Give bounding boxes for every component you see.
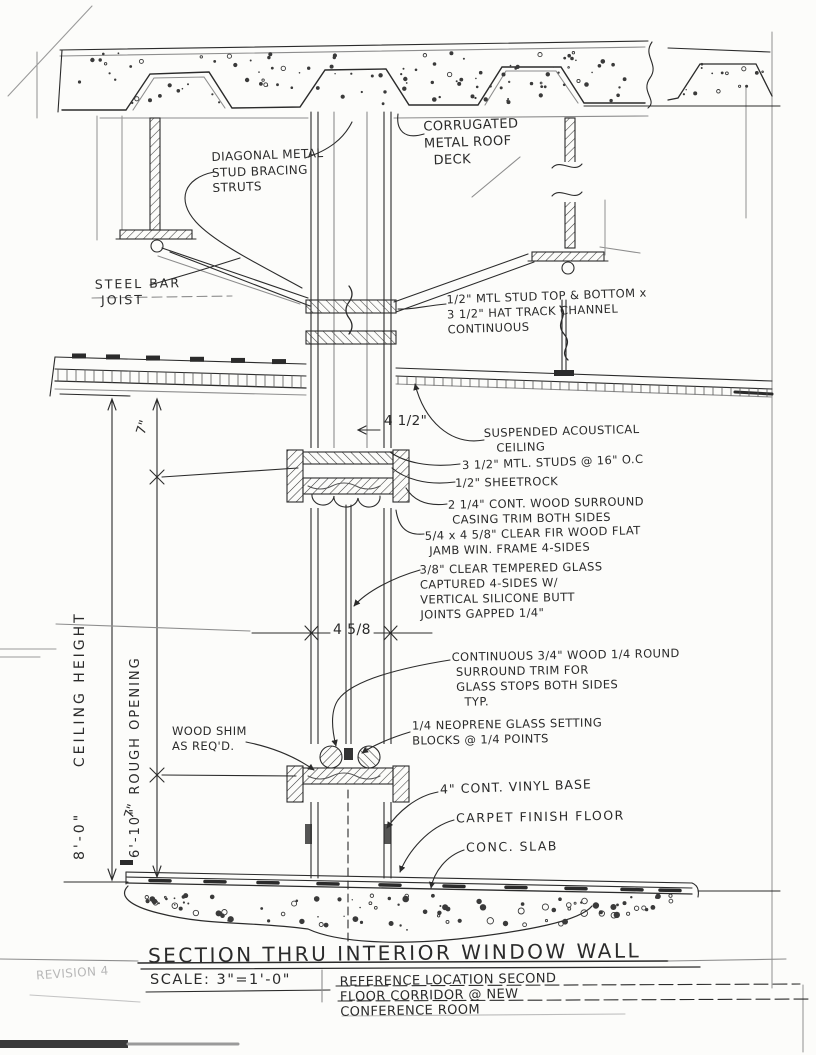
drawing-scale: SCALE: 3"=1'-0" — [150, 971, 291, 990]
reference-note: REFERENCE LOCATION SECOND FLOOR CORRIDOR… — [340, 972, 557, 1021]
hanger-left — [116, 118, 196, 252]
vinyl-base-left — [305, 824, 312, 844]
neoprene-setting-block — [344, 748, 353, 760]
drawing-title: SECTION THRU INTERIOR WINDOW WALL — [148, 937, 641, 968]
callout-sheetrock: 1/2" SHEETROCK — [455, 474, 558, 491]
dim-jamb-depth: 4 5/8 — [333, 621, 371, 639]
callout-corrugated-deck: CORRUGATED METAL ROOF DECK — [423, 116, 520, 170]
hat-track-top — [306, 300, 396, 313]
window-head — [286, 448, 410, 508]
dim-rough-opening: 6'-10" ROUGH OPENING — [128, 656, 143, 858]
callout-diagonal-bracing: DIAGONAL METAL STUD BRACING STRUTS — [211, 146, 325, 197]
callout-suspended-ceiling: SUSPENDED ACOUSTICAL CEILING — [484, 422, 640, 456]
callout-tempered-glass: 3/8" CLEAR TEMPERED GLASS CAPTURED 4-SID… — [419, 559, 603, 622]
callout-conc-slab: CONC. SLAB — [466, 838, 558, 856]
callout-carpet: CARPET FINISH FLOOR — [456, 808, 625, 827]
drawing-sheet: CORRUGATED METAL ROOF DECK DIAGONAL META… — [0, 0, 816, 1055]
callout-jamb-frame: 5/4 x 4 5/8" CLEAR FIR WOOD FLAT JAMB WI… — [425, 523, 642, 559]
callout-neoprene-blocks: 1/4 NEOPRENE GLASS SETTING BLOCKS @ 1/4 … — [412, 715, 603, 748]
dim-wall-width: 4 1/2" — [384, 413, 427, 431]
callout-hat-track: 1/2" MTL STUD TOP & BOTTOM x 3 1/2" HAT … — [446, 286, 648, 338]
concrete-slab — [125, 886, 673, 942]
dim-ceiling-height: 8'-0" CEILING HEIGHT — [72, 611, 88, 860]
callout-quarter-round-trim: CONTINUOUS 3/4" WOOD 1/4 ROUND SURROUND … — [451, 646, 680, 710]
callout-steel-bar-joist: STEEL BAR JOIST — [95, 275, 182, 309]
hanger-right — [528, 118, 640, 274]
floor-finish — [120, 860, 780, 897]
section-linework — [0, 0, 816, 1055]
callout-casing-trim: 2 1/4" CONT. WOOD SURROUND CASING TRIM B… — [448, 494, 645, 527]
hat-track-bottom — [306, 331, 396, 344]
corrugated-roof-deck — [58, 41, 780, 118]
callout-wood-shim: WOOD SHIM AS REQ'D. — [172, 724, 247, 754]
suspended-ceiling-left — [50, 353, 306, 396]
border-lines — [0, 6, 803, 1052]
